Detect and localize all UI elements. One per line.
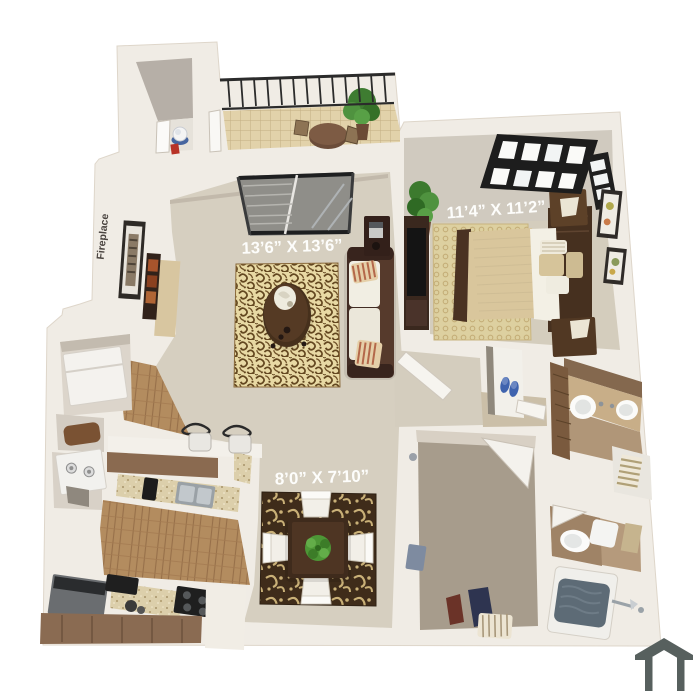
svg-text:13’6” X 13’6”: 13’6” X 13’6”: [241, 236, 342, 258]
svg-text:8’0” X 7’10”: 8’0” X 7’10”: [274, 466, 369, 488]
